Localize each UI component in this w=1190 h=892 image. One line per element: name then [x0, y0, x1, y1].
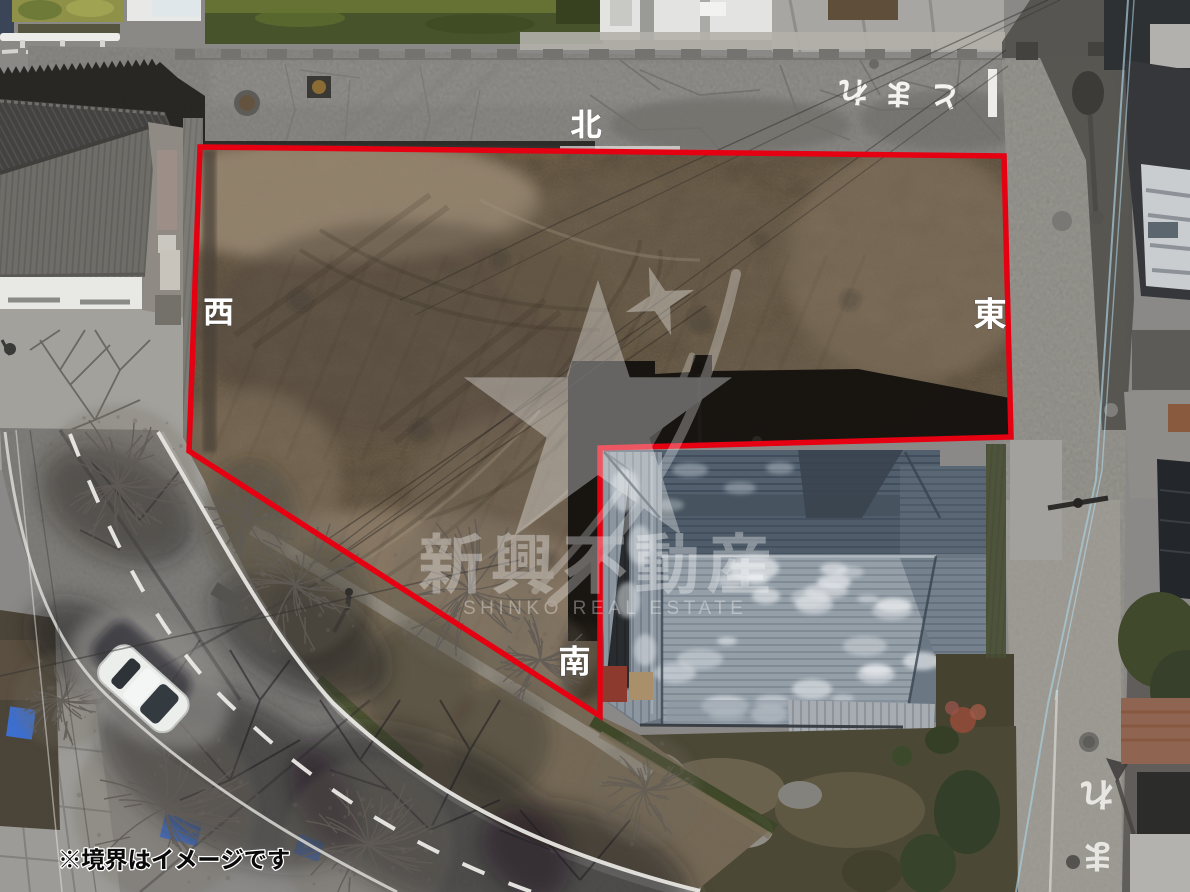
- svg-text:SHINKO REAL ESTATE: SHINKO REAL ESTATE: [463, 598, 747, 619]
